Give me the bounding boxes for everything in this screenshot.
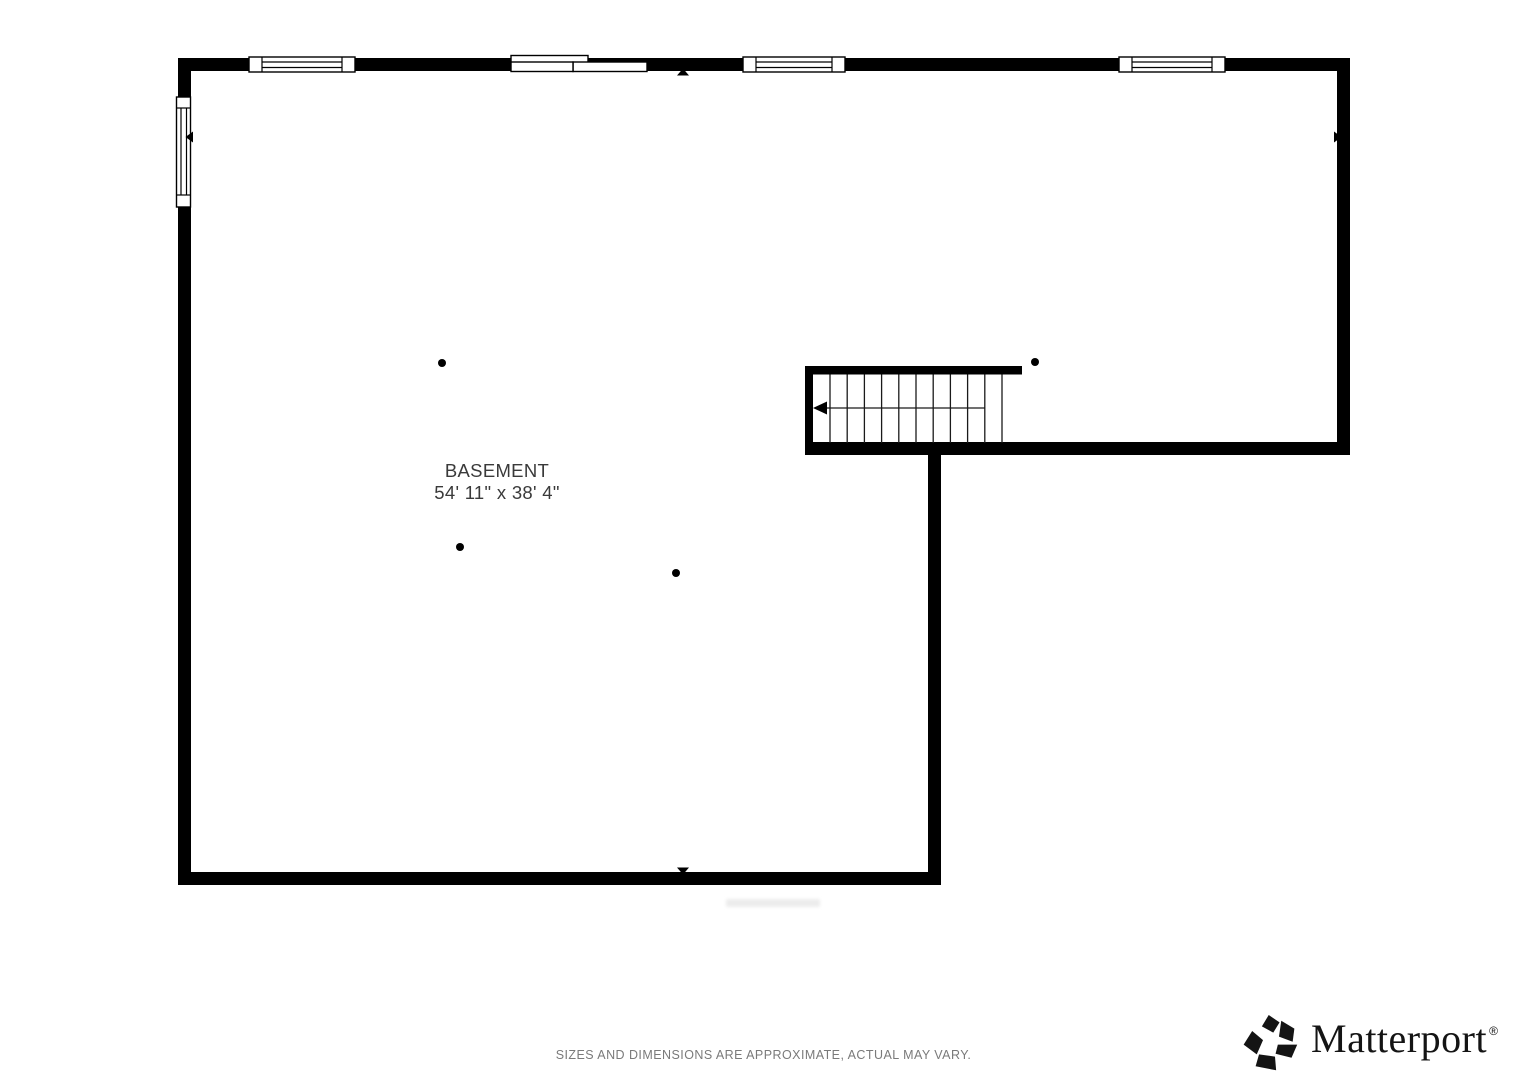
room-name: BASEMENT [434,460,559,482]
stair-direction-arrow-icon [813,402,827,415]
window-left-wall [177,97,191,207]
matterport-wordmark: Matterport® [1311,1010,1498,1077]
matterport-wordmark-text: Matterport [1311,1016,1487,1061]
wall-bottom [178,872,941,885]
windows [177,56,1226,208]
sliding-door-top [511,56,647,72]
window-top-middle [743,57,845,72]
faint-watermark-artifact [726,899,820,907]
room-dimensions: 54' 11" x 38' 4" [434,482,559,504]
window-top-left [249,57,355,72]
floorplan-page: BASEMENT 54' 11" x 38' 4" SIZES AND DIME… [0,0,1527,1080]
matterport-logo: Matterport® [1242,1010,1498,1077]
wall-right-extension [1337,58,1350,455]
support-column-dot [456,543,464,551]
wall-extension-bottom [805,442,1350,455]
view-direction-markers [186,69,1342,875]
wall-stair-left [805,366,813,455]
walls [178,58,1350,885]
stair-treads [830,375,1002,444]
floorplan-drawing [0,0,1527,1080]
support-column-dot [1031,358,1039,366]
staircase [813,375,1002,444]
wall-mid-vertical [928,442,941,885]
matterport-pinwheel-icon [1242,1015,1300,1072]
support-column-dot [672,569,680,577]
support-column-dot [438,359,446,367]
window-top-right [1119,57,1225,72]
room-label-group: BASEMENT 54' 11" x 38' 4" [434,460,559,503]
wall-stair-top [805,366,1022,375]
registered-trademark-symbol: ® [1489,1024,1498,1038]
